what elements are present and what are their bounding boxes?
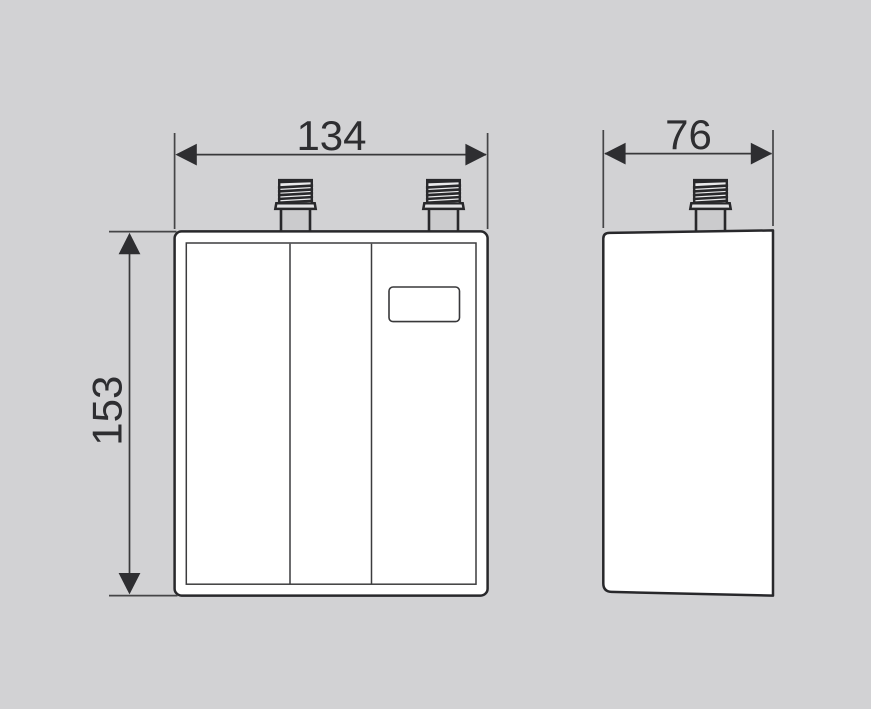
svg-text:134: 134 [296, 112, 366, 159]
svg-text:76: 76 [665, 111, 712, 158]
svg-text:153: 153 [84, 376, 131, 446]
